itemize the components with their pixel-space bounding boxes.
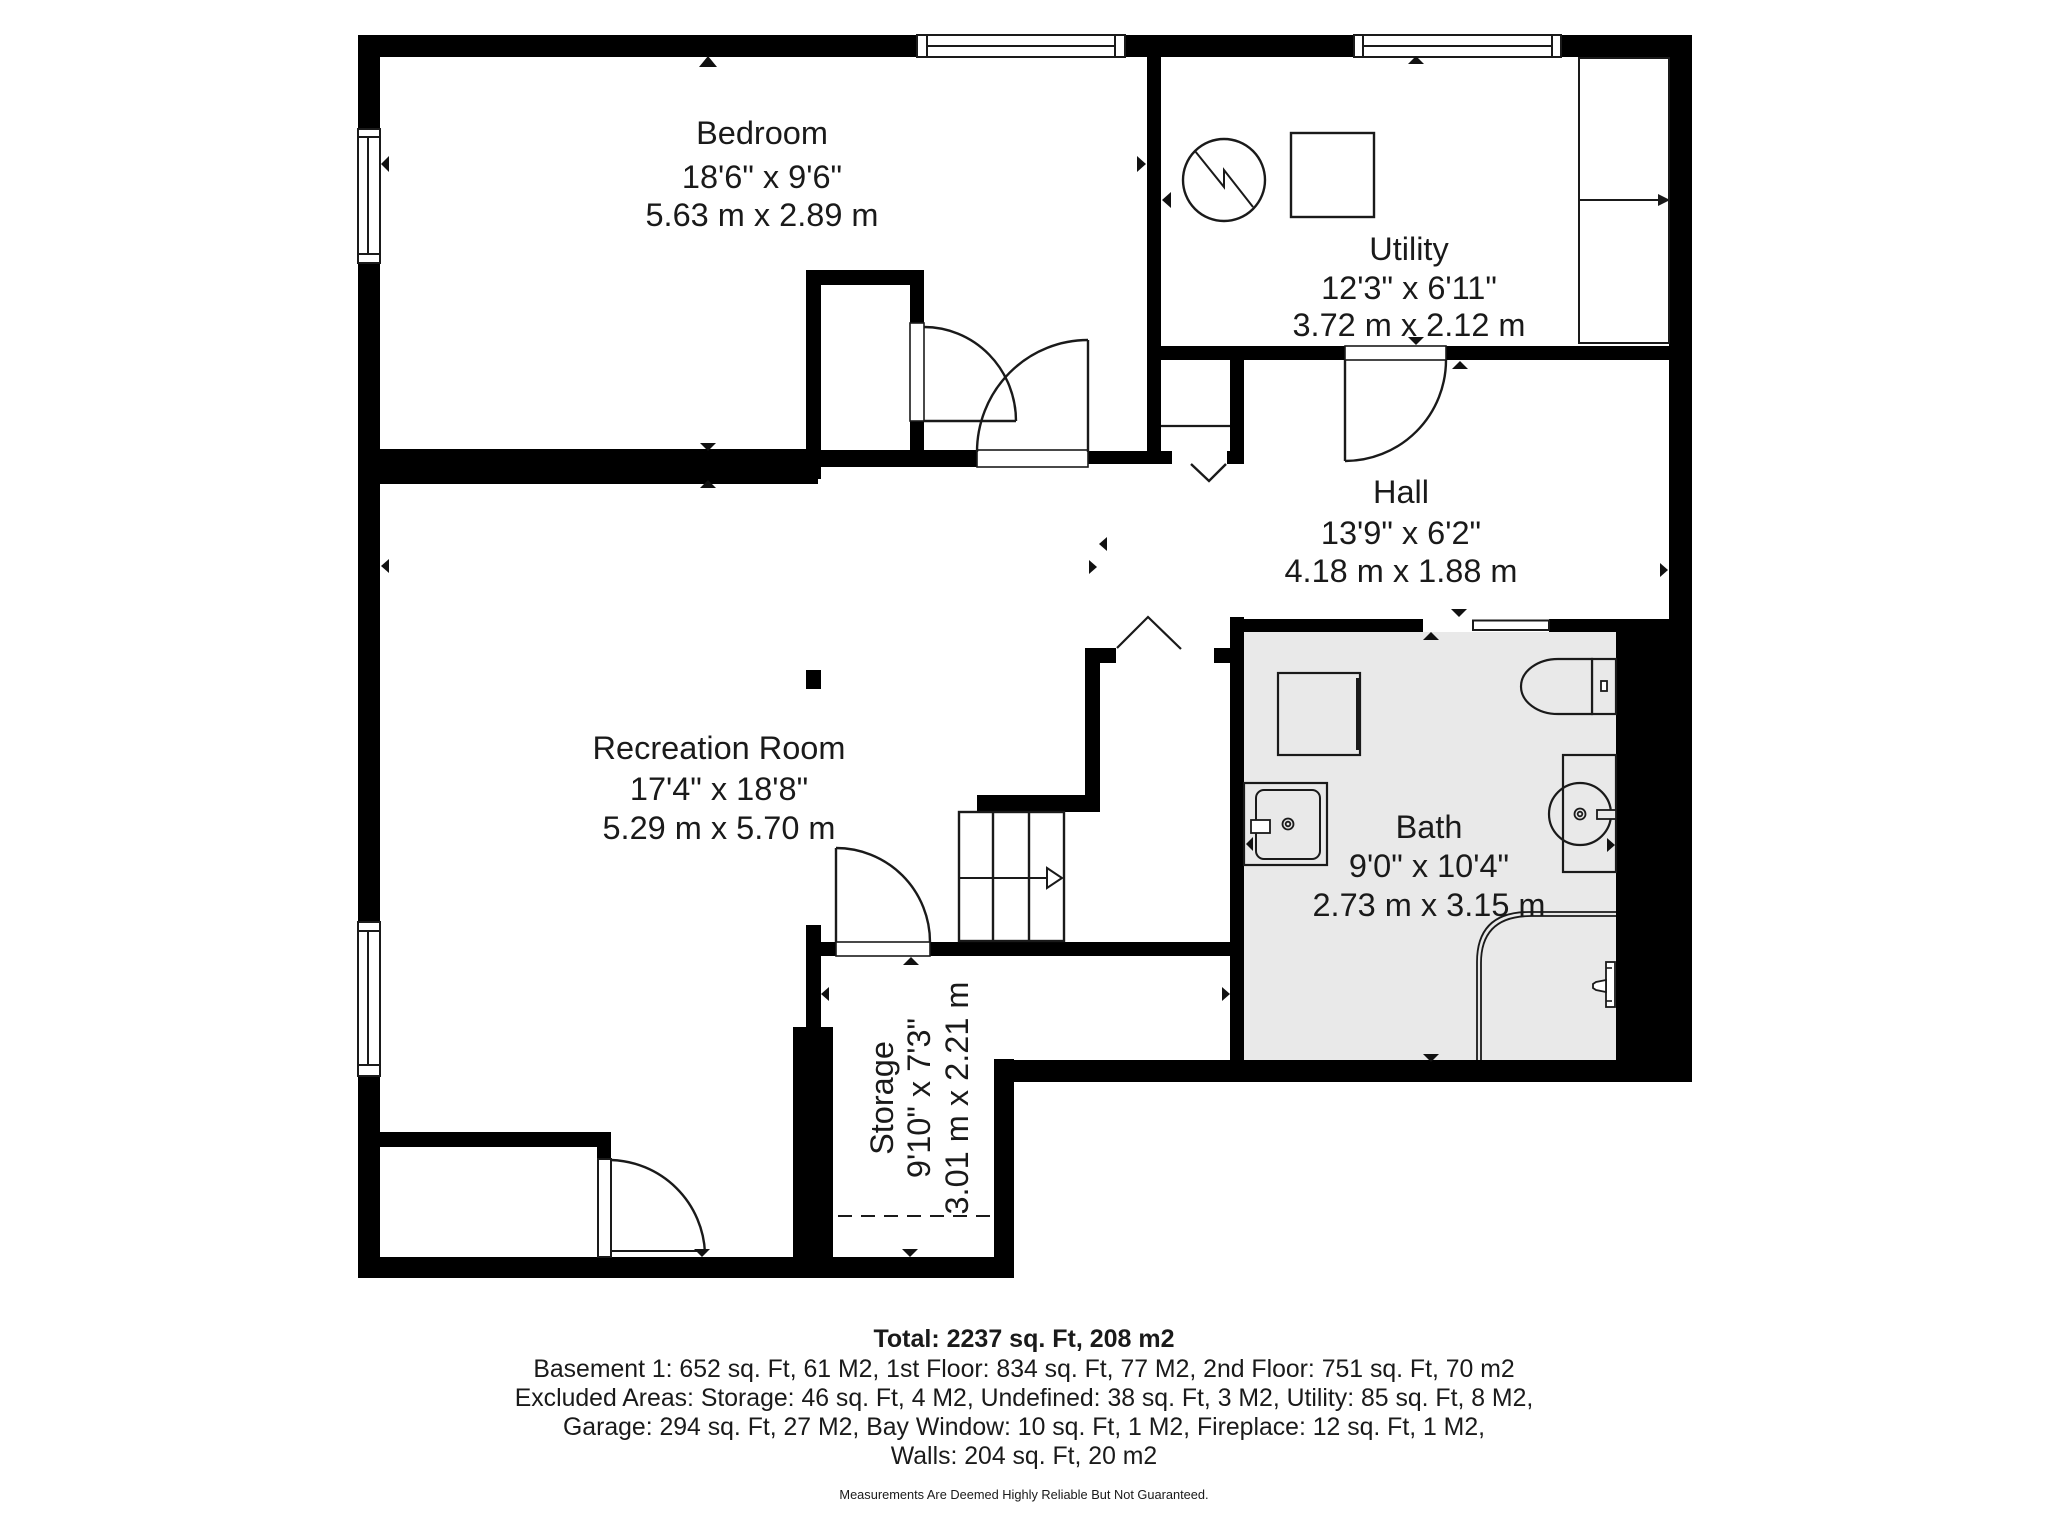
svg-text:Recreation Room: Recreation Room bbox=[593, 730, 846, 766]
svg-text:Measurements Are Deemed Highly: Measurements Are Deemed Highly Reliable … bbox=[839, 1487, 1208, 1502]
svg-text:12'3" x 6'11": 12'3" x 6'11" bbox=[1321, 270, 1497, 306]
svg-text:9'0" x 10'4": 9'0" x 10'4" bbox=[1349, 848, 1509, 884]
svg-text:13'9" x 6'2": 13'9" x 6'2" bbox=[1321, 515, 1481, 551]
svg-text:2.73 m x 3.15 m: 2.73 m x 3.15 m bbox=[1312, 887, 1545, 923]
svg-text:Bedroom: Bedroom bbox=[696, 115, 828, 151]
svg-text:5.29 m x 5.70 m: 5.29 m x 5.70 m bbox=[602, 810, 835, 846]
svg-text:5.63 m x 2.89 m: 5.63 m x 2.89 m bbox=[645, 197, 878, 233]
svg-text:Storage: Storage bbox=[864, 1041, 900, 1155]
svg-text:18'6" x 9'6": 18'6" x 9'6" bbox=[682, 159, 842, 195]
svg-text:Hall: Hall bbox=[1373, 474, 1429, 510]
svg-text:Utility: Utility bbox=[1369, 231, 1449, 267]
svg-text:17'4" x 18'8": 17'4" x 18'8" bbox=[630, 771, 808, 807]
svg-text:Basement 1: 652 sq. Ft, 61 M2,: Basement 1: 652 sq. Ft, 61 M2, 1st Floor… bbox=[533, 1356, 1514, 1383]
svg-text:9'10" x 7'3": 9'10" x 7'3" bbox=[901, 1018, 937, 1178]
svg-text:3.01 m x 2.21 m: 3.01 m x 2.21 m bbox=[939, 981, 975, 1214]
svg-text:Excluded Areas: Storage: 46 sq: Excluded Areas: Storage: 46 sq. Ft, 4 M2… bbox=[515, 1385, 1534, 1412]
svg-text:3.72 m x 2.12 m: 3.72 m x 2.12 m bbox=[1292, 307, 1525, 343]
svg-text:Bath: Bath bbox=[1396, 809, 1463, 845]
svg-text:Garage: 294 sq. Ft, 27 M2, Bay: Garage: 294 sq. Ft, 27 M2, Bay Window: 1… bbox=[563, 1414, 1485, 1441]
svg-text:Walls: 204 sq. Ft, 20 m2: Walls: 204 sq. Ft, 20 m2 bbox=[891, 1443, 1157, 1470]
svg-text:4.18 m x 1.88 m: 4.18 m x 1.88 m bbox=[1284, 553, 1517, 589]
svg-text:Total: 2237 sq. Ft, 208 m2: Total: 2237 sq. Ft, 208 m2 bbox=[873, 1325, 1174, 1353]
